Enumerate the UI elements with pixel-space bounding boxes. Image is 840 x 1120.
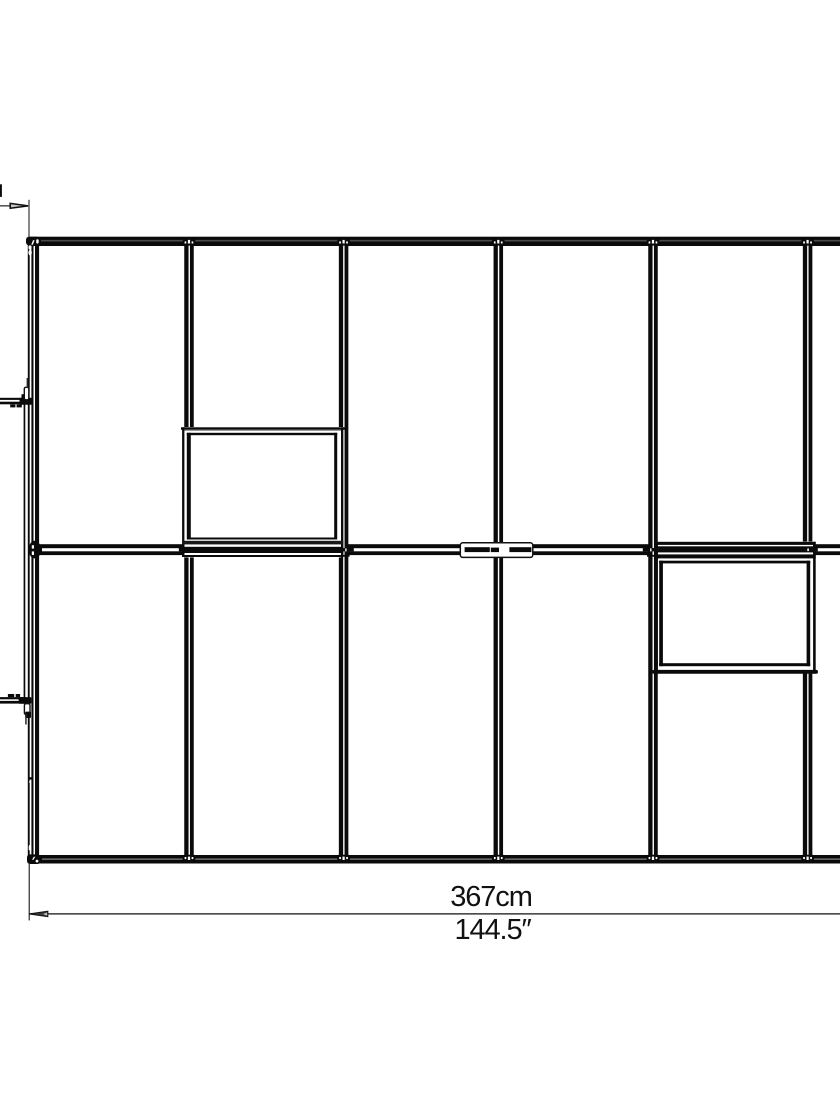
svg-text:144.5″: 144.5″ [454,914,531,946]
svg-text:367cm: 367cm [450,881,532,913]
